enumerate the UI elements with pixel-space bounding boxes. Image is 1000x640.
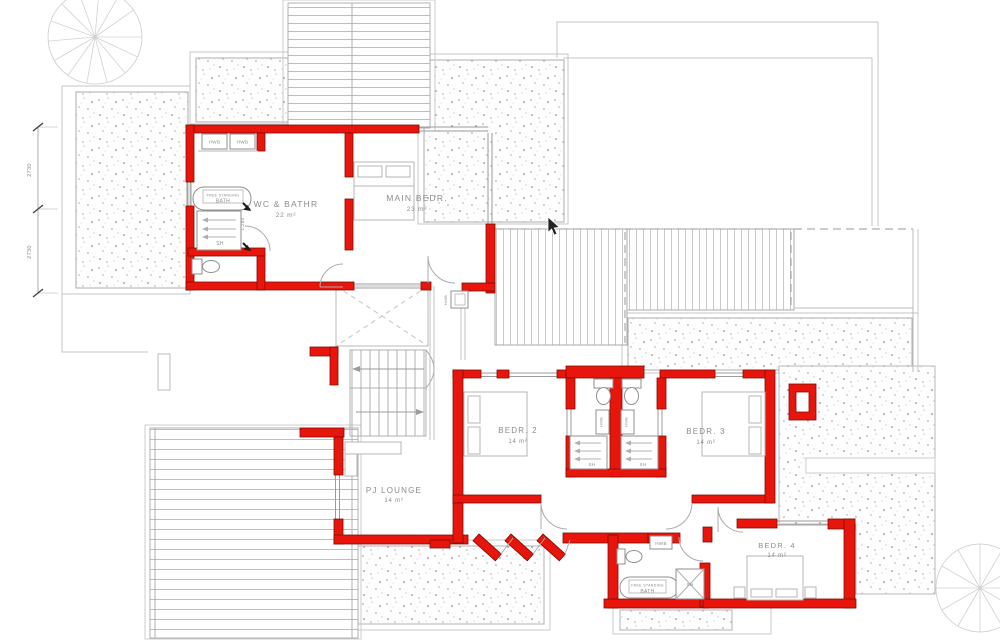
floor-plan-svg: WC & BATHR 22 m² MAIN BEDR. 23 m² BEDR. … <box>0 0 1000 640</box>
bath-label-line2: BATH <box>640 589 654 595</box>
dimension-2730-upper: 2730 <box>27 163 33 177</box>
staircase <box>336 286 434 436</box>
dimension-1280-door: 1,280 <box>240 217 245 230</box>
toilet-bowl <box>625 388 639 405</box>
shower-label: SH <box>589 462 596 467</box>
bath-label-line2: BATH <box>216 199 230 205</box>
hwb-label: HWB <box>624 417 629 427</box>
room-label-bedr-2: BEDR. 2 <box>498 426 538 435</box>
room-label-pj-lounge: PJ LOUNGE <box>366 486 422 495</box>
shower-label: SH <box>216 241 224 247</box>
toilet-bowl <box>203 261 220 273</box>
room-area-bedr-2: 14 m² <box>508 439 527 445</box>
room-label-bedr-3: BEDR. 3 <box>686 427 726 436</box>
room-area-bedr-3: 14 m² <box>696 440 715 446</box>
hwb-label: HWB <box>443 295 448 305</box>
room-label-main-bedr: MAIN BEDR. <box>386 193 448 203</box>
room-area-bedr-4: 14 m² <box>767 553 786 559</box>
toilet-cistern <box>622 379 641 388</box>
hwb-label: HWB <box>237 140 249 145</box>
room-area-wc-bathr: 22 m² <box>276 212 297 219</box>
hwb-label: HWB <box>655 541 667 546</box>
dimension-line-left <box>33 123 58 297</box>
toilet <box>192 259 202 274</box>
bath-label-line1: FREE STANDING <box>207 194 240 198</box>
toilet-bowl <box>626 551 642 563</box>
room-label-wc-bathr: WC & BATHR <box>254 199 319 209</box>
room-area-main-bedr: 23 m² <box>407 206 428 213</box>
toilet-bowl <box>597 388 611 405</box>
room-area-pj-lounge: 14 m² <box>384 498 403 504</box>
toilet-cistern <box>594 379 613 388</box>
room-label-bedr-4: BEDR. 4 <box>758 541 796 550</box>
dimension-2730-lower: 2730 <box>27 245 33 259</box>
bath-label-line1: FREE STANDING <box>631 584 664 588</box>
tree-symbol-bottom-right <box>936 544 1000 632</box>
shower-label: SH <box>687 582 694 587</box>
shower-label: SH <box>640 462 647 467</box>
chimney-flue <box>796 392 809 412</box>
floor-plan-canvas: WC & BATHR 22 m² MAIN BEDR. 23 m² BEDR. … <box>0 0 1000 640</box>
hwb-label: HWB <box>599 417 604 427</box>
tree-symbol-top-left <box>48 0 142 84</box>
toilet-cistern <box>617 549 625 564</box>
hwb-label: HWB <box>209 140 221 145</box>
